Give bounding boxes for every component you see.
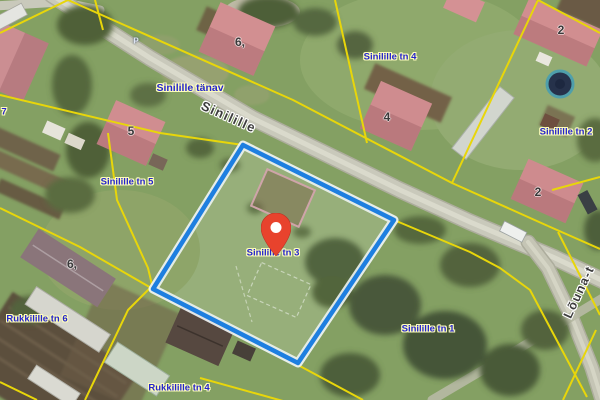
map-imagery-layer	[0, 0, 600, 400]
building-number: 2	[558, 23, 565, 37]
parcel-label-sinilille-tn-2: Sinilille tn 2	[540, 127, 593, 138]
parcel-label-7: 7	[1, 107, 6, 118]
parcel-label-sinilille-tn-1: Sinilille tn 1	[402, 324, 455, 335]
parking-icon: P	[133, 37, 138, 46]
tree-patch	[480, 344, 540, 396]
tree-patch	[440, 243, 500, 287]
pin-hole	[271, 222, 282, 233]
location-marker[interactable]	[261, 213, 291, 256]
street-plate-label: Sinilille tänav	[156, 82, 223, 94]
tree-patch	[45, 177, 95, 213]
building-number: 5	[128, 124, 135, 138]
pin-icon[interactable]	[261, 213, 291, 256]
building-number: 6,	[67, 257, 77, 271]
tree-patch	[521, 310, 569, 350]
tree-patch	[403, 311, 487, 379]
tree-patch	[52, 55, 92, 115]
building-number: 2	[535, 185, 542, 199]
tree-patch	[57, 5, 113, 45]
tree-patch	[320, 353, 380, 397]
parcel-label-rukkilille-tn-6: Rukkilille tn 6	[6, 314, 67, 325]
trampoline-centre	[555, 79, 565, 89]
parcel-label-rukkilille-tn-4: Rukkilille tn 4	[148, 383, 209, 394]
tree-patch	[293, 8, 337, 36]
building-number: 6,	[235, 35, 245, 49]
aerial-map-canvas[interactable]: Sinilille tänav Sinilille Lõuna-t P Sini…	[0, 0, 600, 400]
parcel-label-sinilille-tn-5: Sinilille tn 5	[101, 177, 154, 188]
building-number: 4	[384, 110, 391, 124]
parcel-label-sinilille-tn-4: Sinilille tn 4	[364, 52, 417, 63]
